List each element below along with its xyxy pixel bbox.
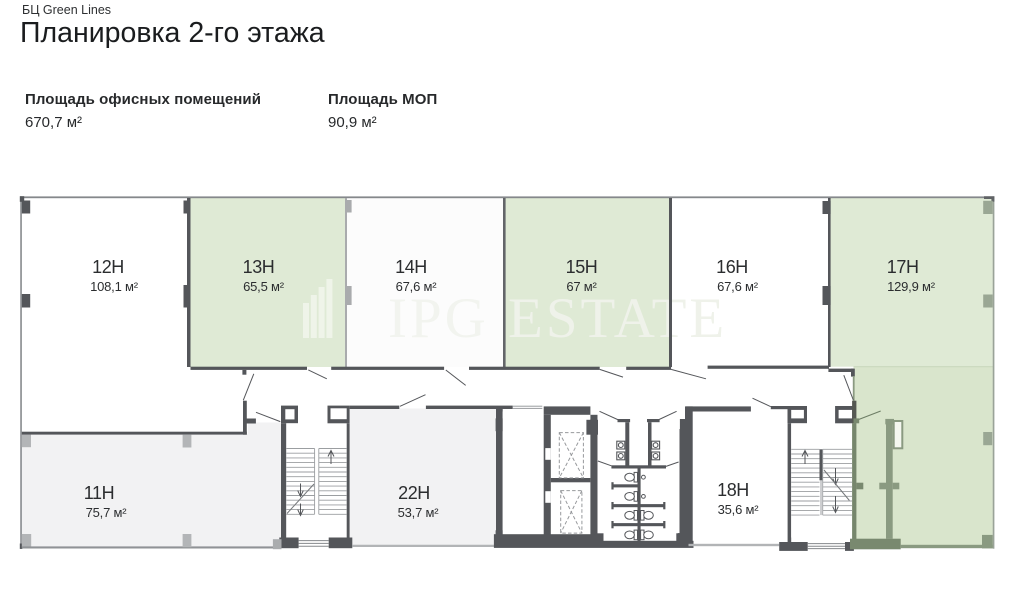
svg-text:ESTATE: ESTATE (508, 287, 727, 350)
svg-text:IPG: IPG (388, 287, 489, 350)
